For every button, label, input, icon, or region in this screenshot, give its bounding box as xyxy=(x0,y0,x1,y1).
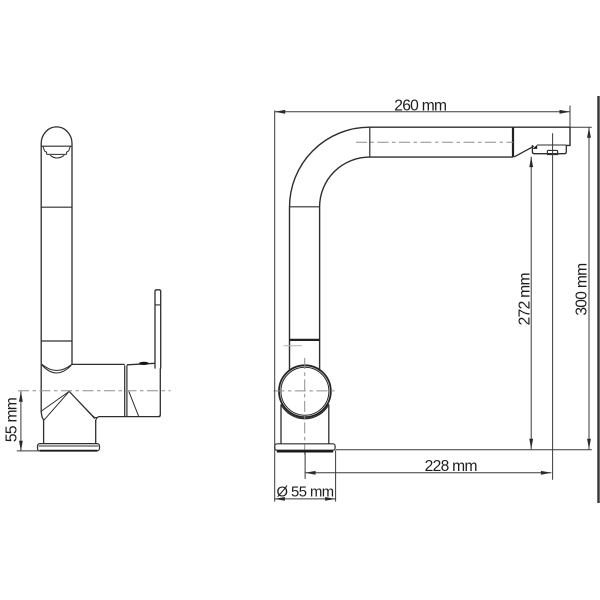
svg-text:Ø 55 mm: Ø 55 mm xyxy=(277,485,334,501)
svg-text:272 mm: 272 mm xyxy=(516,273,533,325)
svg-text:300 mm: 300 mm xyxy=(573,264,590,316)
svg-text:55 mm: 55 mm xyxy=(4,398,21,442)
svg-text:228 mm: 228 mm xyxy=(425,458,477,475)
svg-text:260 mm: 260 mm xyxy=(394,97,446,114)
